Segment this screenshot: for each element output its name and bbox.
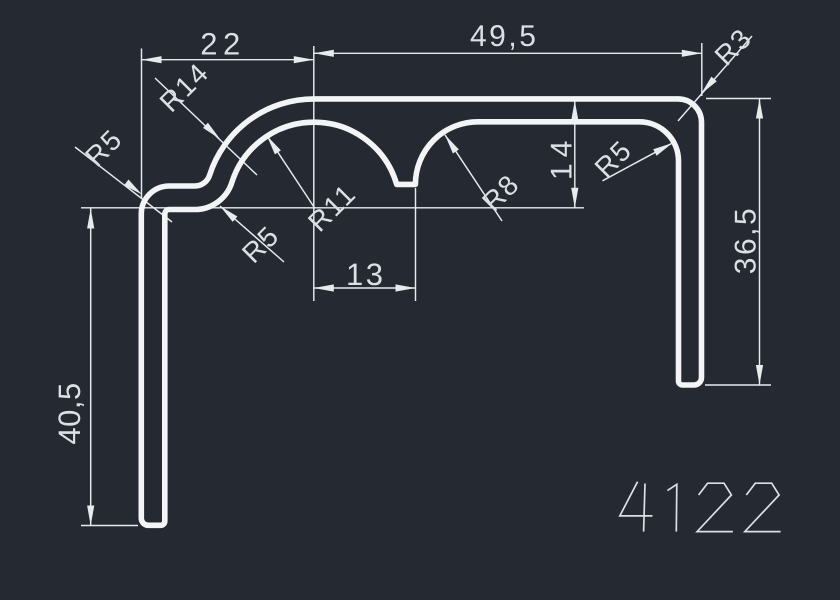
svg-text:36,5: 36,5 <box>730 206 763 274</box>
svg-text:40,5: 40,5 <box>52 382 87 444</box>
svg-text:22: 22 <box>200 27 245 62</box>
svg-text:49,5: 49,5 <box>470 20 538 53</box>
svg-text:13: 13 <box>346 257 385 292</box>
svg-text:14: 14 <box>546 135 579 180</box>
